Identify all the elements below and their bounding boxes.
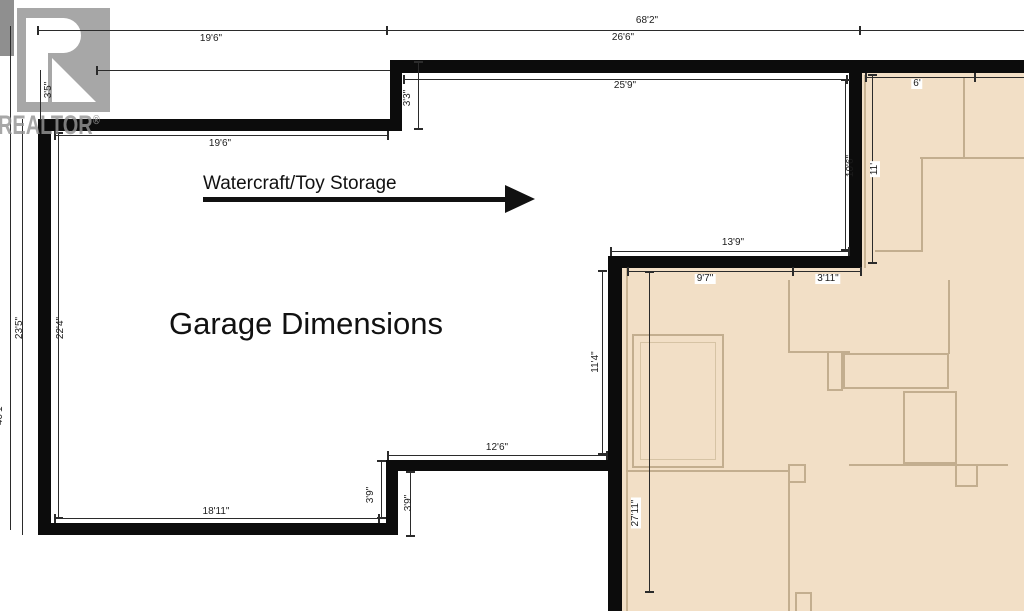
dim-label-lower-jog-right: 3'9" [404, 495, 414, 512]
registered-mark: ® [93, 112, 100, 127]
dim-label-right-wall-height-tan: 11' [870, 161, 880, 177]
dim-label-tan-left-height: 27'11" [631, 498, 641, 529]
adjacent-wall-line [948, 280, 950, 354]
adjacent-pillar-outline [788, 464, 806, 483]
dim-label-right-wall-height-inner: 10'6" [846, 155, 856, 177]
dim-line-19-6-inner [55, 135, 388, 136]
wall-top [390, 60, 1024, 73]
wall-jog-3-3 [390, 60, 402, 131]
storage-arrow-head [505, 185, 535, 213]
page-title: Garage Dimensions [169, 306, 443, 342]
watermark-corner-strip [0, 0, 14, 56]
dim-label-overall-width: 68'2" [636, 16, 658, 26]
dim-line-6 [866, 77, 1024, 78]
adjacent-wall-line [920, 157, 1024, 159]
dim-extension-line [97, 70, 390, 71]
dim-line-9-7-3-11 [628, 271, 861, 272]
dim-line-27-11 [649, 272, 650, 592]
dim-line-overall [38, 30, 1024, 31]
adjacent-room-outline [903, 391, 957, 464]
dim-label-storage-inner-width: 19'6" [209, 139, 231, 149]
wall-step-horizontal [386, 460, 622, 471]
watermark-brand-text: REALTOR [0, 110, 93, 140]
realtor-logo-r-bowl [48, 18, 81, 53]
wall-bottom [38, 523, 398, 535]
dim-label-mid-wall-height: 11'4" [591, 351, 601, 372]
dim-label-step-inner-right: 3'11" [815, 274, 840, 284]
adjacent-room-outline-inner [640, 342, 716, 460]
dim-label-step-inner-left: 9'7" [695, 274, 716, 284]
adjacent-wall-line [921, 159, 923, 252]
tan-edge-line [864, 75, 866, 268]
wall-left [38, 119, 51, 535]
adjacent-area-fill-upper [862, 73, 1024, 268]
adjacent-pillar-outline [827, 351, 843, 391]
dim-line-40-1 [10, 26, 11, 530]
dim-label-top-right-width: 26'6" [612, 33, 634, 43]
dim-label-inner-top-right-width: 25'9" [614, 81, 636, 91]
dim-label-step-width: 13'9" [722, 238, 744, 248]
adjacent-wall-line [849, 464, 1008, 466]
dim-label-jog-top: 3'3" [403, 90, 413, 107]
dim-line-11-4 [602, 271, 603, 454]
storage-label: Watercraft/Toy Storage [203, 173, 397, 195]
floor-plan: 68'2" 19'6" 26'6" 25'9" 19'6" 3'3" 3'5" … [0, 0, 1024, 611]
dim-line-18-11 [55, 518, 379, 519]
adjacent-pillar-outline [955, 464, 978, 487]
adjacent-wall-line [875, 250, 923, 252]
wall-13-9 [608, 256, 862, 268]
adjacent-wall-line [788, 483, 790, 611]
adjacent-wall-line [626, 470, 789, 472]
dim-label-left-inner-height: 22'4" [56, 317, 66, 339]
adjacent-room-outline [843, 353, 949, 389]
watermark-brand: REALTOR® [0, 110, 100, 141]
adjacent-wall-line [963, 77, 965, 159]
tan-edge-line [626, 268, 628, 611]
realtor-logo-r-leg [52, 58, 96, 102]
adjacent-pillar-outline [795, 592, 812, 611]
dim-label-left-height: 23'5" [15, 317, 25, 339]
realtor-logo [17, 8, 110, 112]
dim-label-bottom-width: 18'11" [203, 507, 230, 517]
wall-step-vertical [386, 460, 398, 535]
dim-line-12-6 [388, 455, 607, 456]
storage-arrow [203, 197, 512, 202]
dim-label-left-outer-height: 40'1" [0, 403, 5, 425]
dim-label-tan-top-width: 6' [911, 79, 922, 89]
wall-middle-vertical [608, 256, 622, 611]
dim-line-3-9-left [381, 461, 382, 518]
dim-label-lower-jog-left: 3'9" [366, 487, 376, 504]
dim-line-3-3 [418, 62, 419, 129]
dim-label-lower-step-width: 12'6" [486, 443, 508, 453]
adjacent-wall-line [788, 280, 790, 352]
dim-label-top-offset-left: 3'5" [44, 82, 54, 99]
dim-label-top-left-width: 19'6" [200, 34, 222, 44]
dim-line-13-9 [611, 251, 849, 252]
